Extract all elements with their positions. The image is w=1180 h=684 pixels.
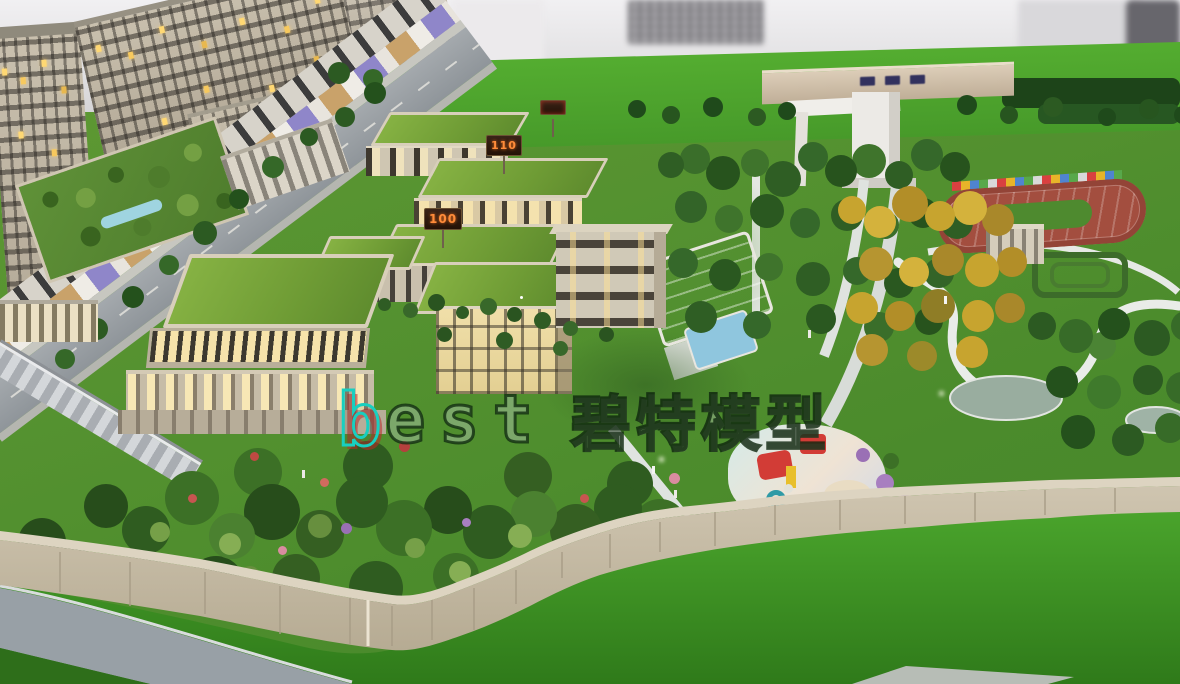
watermark-latin: est <box>385 381 546 458</box>
company-watermark: b est 碧特模型 <box>338 376 831 463</box>
watermark-chinese: 碧特模型 <box>571 376 831 463</box>
architecture-model-photo: 110 100 b est 碧特模型 <box>0 0 1180 684</box>
watermark-letter-b: b <box>338 378 381 462</box>
perimeter-wall-layer <box>0 0 1180 684</box>
